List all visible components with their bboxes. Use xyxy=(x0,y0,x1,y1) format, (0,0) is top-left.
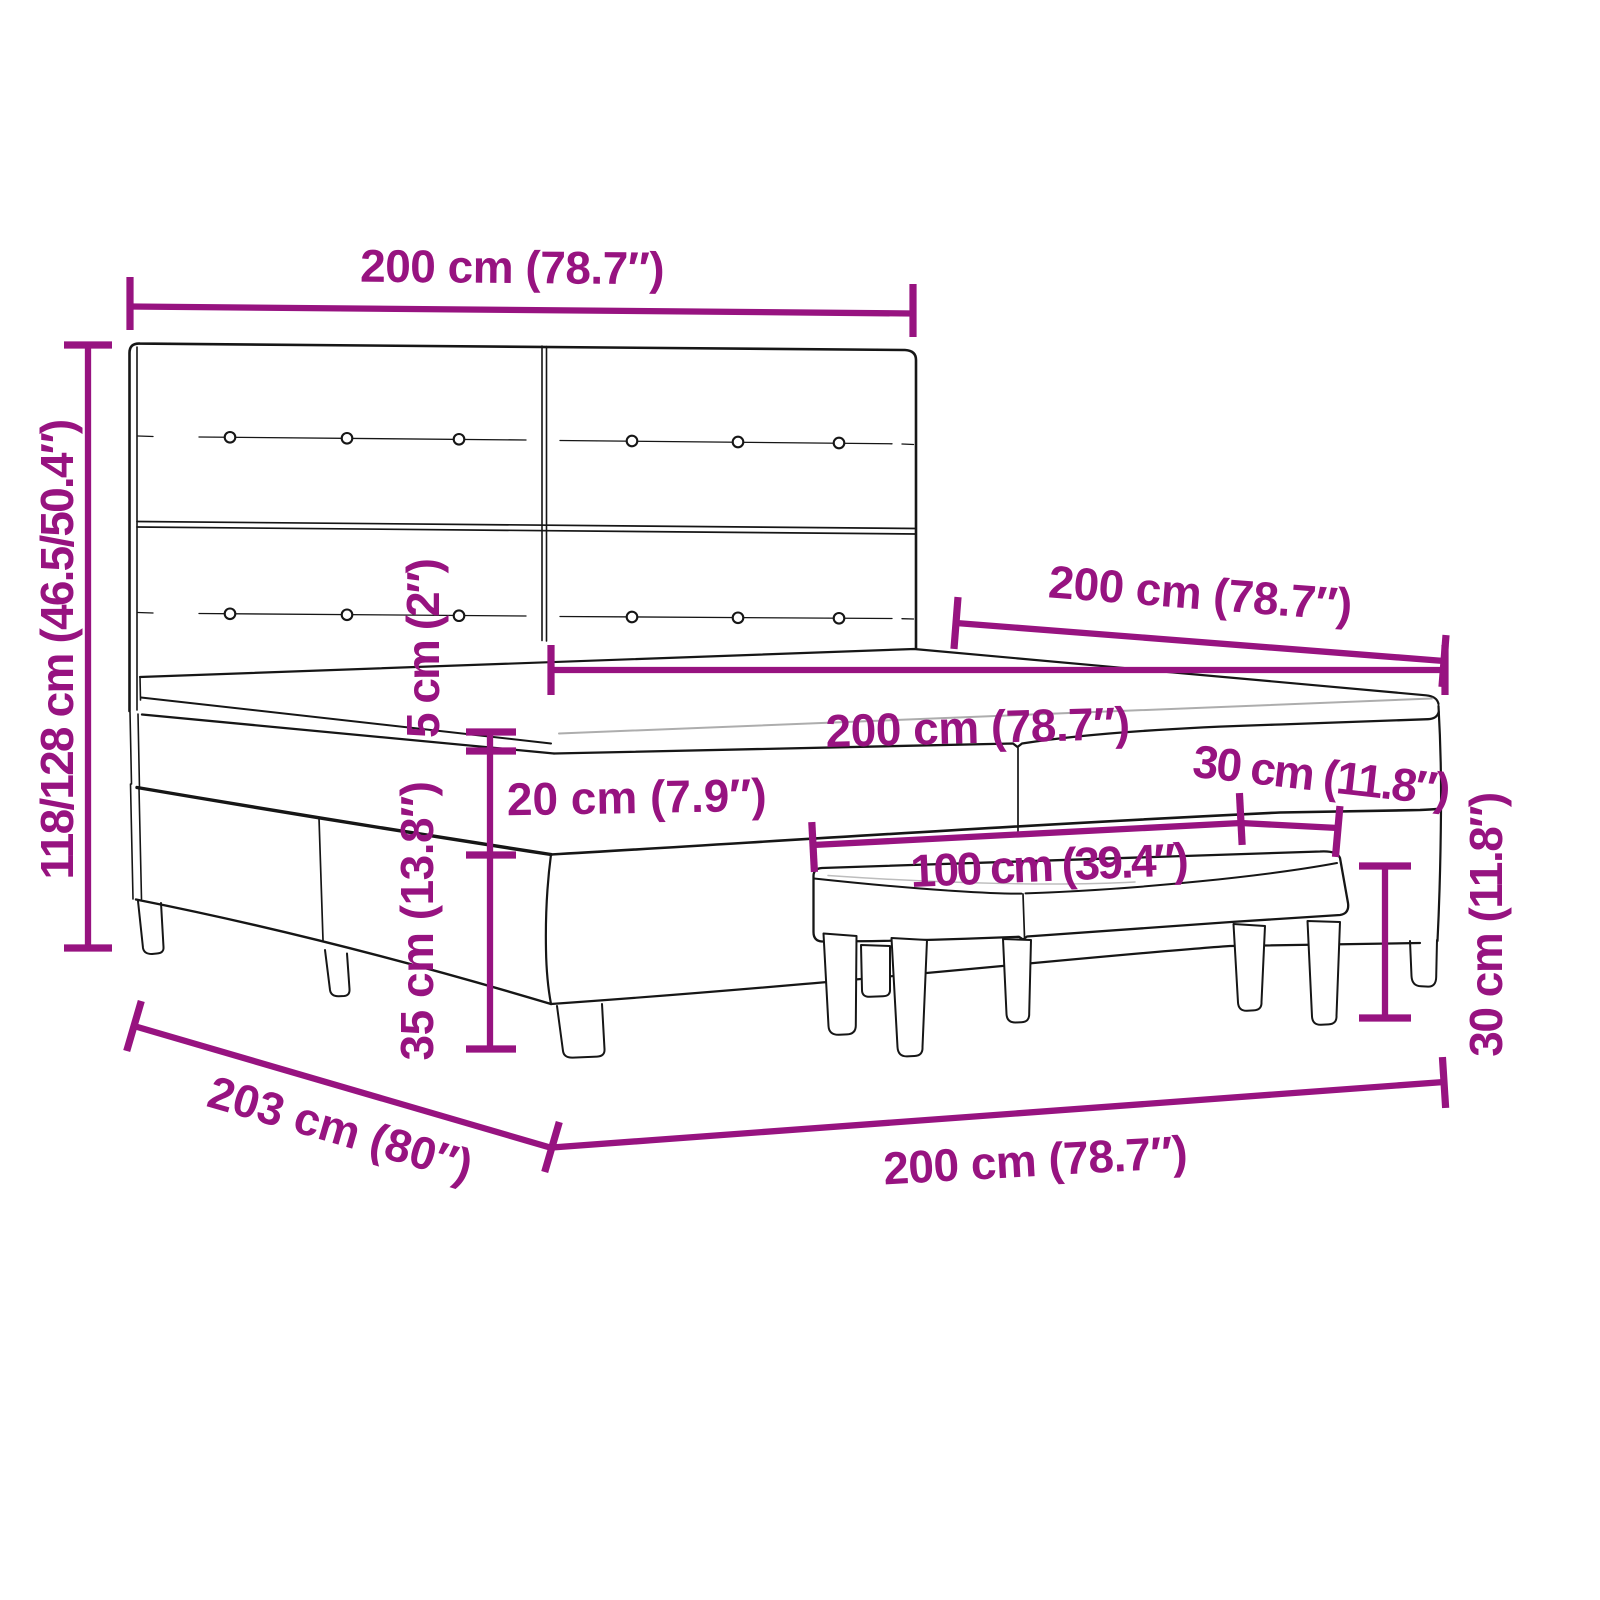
svg-text:20 cm (7.9″): 20 cm (7.9″) xyxy=(506,769,767,826)
svg-text:118/128 cm (46.5/50.4″): 118/128 cm (46.5/50.4″) xyxy=(31,420,83,879)
svg-text:30 cm (11.8″): 30 cm (11.8″) xyxy=(1460,793,1512,1057)
svg-text:200 cm (78.7″): 200 cm (78.7″) xyxy=(825,697,1130,757)
svg-text:35 cm (13.8″): 35 cm (13.8″) xyxy=(391,782,443,1061)
svg-text:200 cm (78.7″): 200 cm (78.7″) xyxy=(360,240,664,295)
svg-text:5 cm (2″): 5 cm (2″) xyxy=(397,559,449,738)
